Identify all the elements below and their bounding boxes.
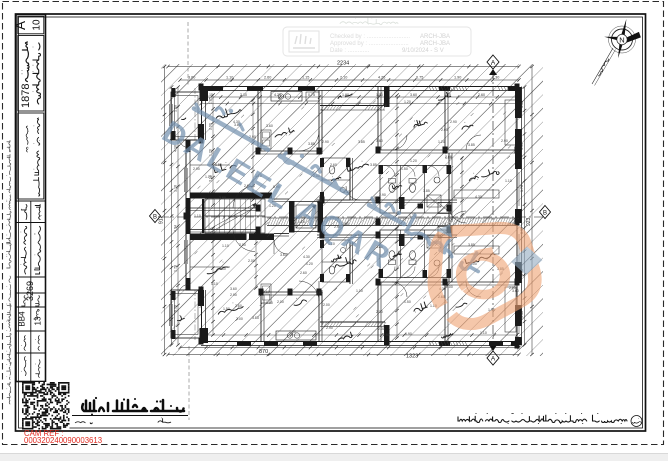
svg-text:2.00: 2.00: [236, 317, 243, 321]
svg-text:2.10: 2.10: [340, 76, 347, 80]
svg-text:3.60: 3.60: [188, 76, 195, 80]
svg-text:A: A: [491, 60, 496, 67]
svg-text:3.60: 3.60: [219, 196, 226, 200]
svg-text:923: 923: [526, 217, 532, 226]
svg-text:3.85: 3.85: [468, 143, 475, 147]
svg-text:1.10: 1.10: [174, 185, 178, 192]
svg-text:4.30: 4.30: [303, 255, 310, 259]
svg-text:1.50: 1.50: [223, 307, 230, 311]
svg-text:2.60: 2.60: [264, 76, 271, 80]
svg-text:2.60: 2.60: [330, 163, 337, 167]
svg-text:3.85: 3.85: [370, 163, 377, 167]
svg-text:4.25: 4.25: [378, 76, 385, 80]
svg-text:1.90: 1.90: [454, 76, 461, 80]
svg-text:0.90: 0.90: [405, 332, 412, 336]
svg-text:1.35: 1.35: [209, 97, 213, 104]
svg-text:1.10: 1.10: [211, 282, 218, 286]
svg-text:BB4: BB4: [18, 311, 27, 327]
svg-text:9/10/2024 - S V: 9/10/2024 - S V: [402, 48, 444, 54]
svg-text:Date : .............: Date : .............: [330, 48, 370, 54]
svg-text:3.85: 3.85: [358, 140, 365, 144]
svg-text:870: 870: [259, 349, 268, 355]
svg-text:ARCH-JBA: ARCH-JBA: [420, 34, 450, 40]
svg-text:1.10: 1.10: [266, 301, 273, 305]
svg-text:N: N: [619, 36, 624, 45]
svg-text:10: 10: [32, 19, 43, 31]
svg-text:1.10: 1.10: [194, 214, 201, 218]
svg-text:000320240090003613: 000320240090003613: [24, 436, 102, 445]
svg-text:1.10: 1.10: [505, 179, 512, 183]
svg-text:2.00: 2.00: [446, 285, 453, 289]
svg-text:1.70: 1.70: [520, 185, 524, 192]
svg-text:2234: 2234: [337, 61, 349, 67]
svg-text:2.90: 2.90: [450, 120, 457, 124]
svg-text:4.94: 4.94: [174, 225, 178, 232]
svg-text:2.00: 2.00: [441, 128, 448, 132]
svg-text:Approved by : ................: Approved by : ........................: [330, 41, 409, 47]
svg-text:2.00: 2.00: [378, 327, 385, 331]
svg-text:1.20: 1.20: [438, 140, 445, 144]
svg-text:1.50: 1.50: [445, 156, 452, 160]
svg-text:2.90: 2.90: [230, 293, 237, 297]
svg-text:B: B: [153, 215, 157, 221]
svg-text:1.30: 1.30: [376, 93, 383, 97]
svg-text:0.75: 0.75: [416, 76, 423, 80]
svg-text:1323: 1323: [406, 354, 418, 360]
svg-text:4.25: 4.25: [274, 93, 281, 97]
svg-text:13: 13: [34, 316, 43, 325]
svg-text:0.90: 0.90: [316, 291, 323, 295]
svg-text:1.10: 1.10: [356, 289, 363, 293]
svg-text:0.90: 0.90: [174, 305, 178, 312]
svg-text:3269: 3269: [25, 281, 35, 301]
svg-text:2.00: 2.00: [509, 286, 516, 290]
svg-text:0.90: 0.90: [383, 333, 390, 337]
svg-text:B: B: [543, 211, 547, 217]
svg-text:1.20: 1.20: [306, 262, 313, 266]
svg-text:2.60: 2.60: [478, 93, 485, 97]
svg-text:2.90: 2.90: [322, 140, 329, 144]
svg-text:2.00: 2.00: [239, 243, 246, 247]
svg-text:0.75: 0.75: [308, 93, 315, 97]
svg-text:A: A: [13, 21, 28, 30]
svg-text:3.85: 3.85: [423, 189, 430, 193]
svg-text:1.10: 1.10: [380, 103, 387, 107]
svg-text:1.50: 1.50: [401, 167, 408, 171]
svg-text:1.10: 1.10: [480, 331, 487, 335]
svg-text:1.10: 1.10: [263, 290, 270, 294]
svg-text:3.60: 3.60: [266, 124, 273, 128]
svg-text:2.60: 2.60: [300, 271, 307, 275]
svg-text:1878: 1878: [20, 84, 32, 108]
svg-text:2.60: 2.60: [235, 304, 242, 308]
svg-text:2.90: 2.90: [209, 123, 213, 130]
svg-text:1.20: 1.20: [404, 100, 411, 104]
svg-text:2.00: 2.00: [323, 303, 330, 307]
svg-text:3.85: 3.85: [468, 243, 475, 247]
svg-text:2.00: 2.00: [277, 300, 284, 304]
svg-text:1.10: 1.10: [226, 76, 233, 80]
svg-text:1.20: 1.20: [410, 159, 417, 163]
svg-text:2.90: 2.90: [379, 193, 386, 197]
svg-text:3.60: 3.60: [410, 93, 417, 97]
svg-text:Checked by : .................: Checked by : ..........................: [330, 34, 410, 40]
svg-text:1.10: 1.10: [222, 244, 229, 248]
svg-text:2.10: 2.10: [240, 93, 247, 97]
svg-text:3.60: 3.60: [230, 287, 237, 291]
svg-text:2.60: 2.60: [289, 330, 296, 334]
svg-text:2.00: 2.00: [376, 310, 383, 314]
svg-text:3.85: 3.85: [308, 142, 315, 146]
svg-text:3.60: 3.60: [376, 139, 383, 143]
svg-text:1.70: 1.70: [174, 265, 178, 272]
svg-text:3.60: 3.60: [219, 267, 226, 271]
svg-text:1.15: 1.15: [302, 76, 309, 80]
svg-text:2.90: 2.90: [326, 326, 333, 330]
svg-text:ARCH-JBA: ARCH-JBA: [420, 41, 450, 47]
svg-text:4.30: 4.30: [475, 195, 482, 199]
svg-text:1.50: 1.50: [174, 105, 178, 112]
svg-text:1.50: 1.50: [404, 300, 411, 304]
svg-text:2.00: 2.00: [248, 259, 255, 263]
svg-text:2.90: 2.90: [501, 139, 508, 143]
svg-text:A: A: [491, 356, 496, 363]
svg-text:3.60: 3.60: [280, 253, 287, 257]
